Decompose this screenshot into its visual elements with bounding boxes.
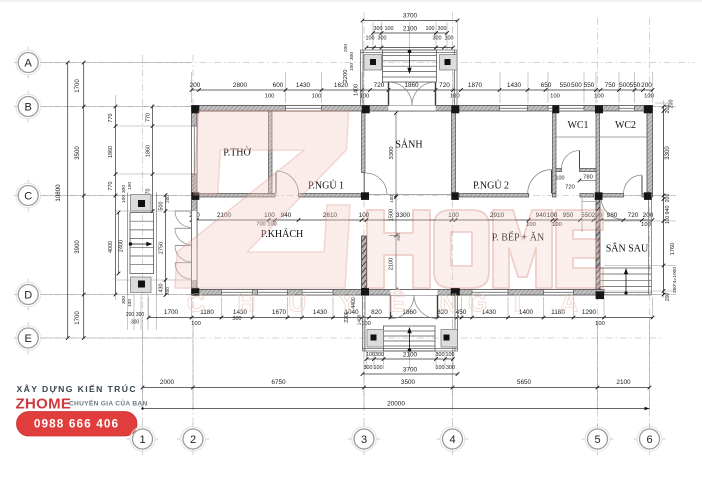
svg-text:3: 3 [361,434,367,446]
svg-text:100: 100 [556,176,565,182]
svg-text:1: 1 [139,434,145,446]
svg-text:100: 100 [127,299,133,307]
svg-text:Ê: Ê [389,288,406,318]
svg-text:720: 720 [565,185,575,191]
svg-text:100: 100 [445,36,454,42]
svg-text:2400: 2400 [119,240,125,252]
svg-text:5: 5 [594,434,600,446]
svg-text:650: 650 [541,82,552,89]
svg-text:3300: 3300 [396,212,411,219]
svg-text:ZHOME: ZHOME [16,396,72,413]
svg-text:940: 940 [665,206,671,215]
svg-text:770: 770 [146,113,152,122]
svg-text:100: 100 [366,352,375,358]
svg-text:100: 100 [595,321,605,327]
svg-text:720: 720 [439,82,450,89]
svg-text:3700: 3700 [403,13,418,20]
svg-text:100: 100 [641,222,651,228]
svg-text:1860: 1860 [404,82,419,89]
svg-text:C: C [24,191,32,203]
svg-text:100: 100 [665,216,671,225]
svg-text:300: 300 [446,365,455,371]
svg-text:1430: 1430 [507,82,522,89]
svg-text:2: 2 [190,434,196,446]
svg-text:E: E [25,333,32,345]
svg-text:200: 200 [165,195,170,203]
svg-text:1430: 1430 [313,309,328,316]
svg-text:100: 100 [644,94,654,100]
svg-text:WC1: WC1 [567,120,588,131]
svg-text:4000: 4000 [108,241,114,253]
svg-text:100: 100 [446,352,455,358]
svg-text:200: 200 [665,105,671,114]
svg-text:100: 100 [360,94,370,100]
svg-text:1290: 1290 [582,309,597,316]
svg-text:750: 750 [605,82,616,89]
svg-text:P.NGỦ 2: P.NGỦ 2 [473,180,509,192]
svg-text:D: D [24,290,32,302]
svg-text:770: 770 [108,182,114,191]
svg-text:2100: 2100 [389,258,395,270]
svg-text:N: N [440,290,458,318]
svg-text:1670: 1670 [272,309,287,316]
svg-text:1700: 1700 [75,311,81,325]
svg-text:300: 300 [374,26,383,32]
svg-text:Y: Y [339,290,356,318]
svg-text:1860: 1860 [146,145,152,157]
svg-text:720: 720 [628,212,639,219]
svg-text:H: H [238,290,256,318]
svg-text:500: 500 [571,82,582,89]
svg-text:100: 100 [127,182,133,190]
svg-text:100: 100 [385,26,394,32]
svg-text:1620: 1620 [334,82,349,89]
svg-text:500: 500 [619,82,630,89]
svg-text:1870: 1870 [468,82,483,89]
svg-text:2750: 2750 [159,242,165,254]
svg-text:SÂN SAU: SÂN SAU [606,243,649,255]
svg-text:I: I [514,290,521,318]
svg-text:300: 300 [436,352,445,358]
svg-text:5650: 5650 [517,379,532,386]
svg-text:U: U [288,290,306,318]
svg-text:A: A [25,58,33,70]
svg-text:2100: 2100 [403,352,418,359]
svg-text:6750: 6750 [271,379,286,386]
svg-text:100: 100 [594,94,604,100]
svg-text:100: 100 [349,63,355,71]
svg-text:500: 500 [159,202,165,211]
svg-text:200: 200 [665,293,671,302]
svg-text:2100: 2100 [616,379,631,386]
svg-text:100: 100 [191,321,201,327]
svg-text:600: 600 [273,82,284,89]
svg-text:100: 100 [426,26,435,32]
svg-text:2000: 2000 [160,379,175,386]
svg-text:100: 100 [312,94,322,100]
svg-text:100: 100 [550,94,560,100]
svg-text:430: 430 [159,284,165,293]
svg-text:300: 300 [364,365,373,371]
svg-text:100: 100 [265,94,275,100]
svg-text:100: 100 [374,365,383,371]
svg-text:6: 6 [646,434,652,446]
svg-text:A: A [560,290,578,318]
svg-text:4: 4 [449,434,455,446]
svg-text:1760: 1760 [670,243,676,255]
svg-text:550: 550 [584,82,595,89]
svg-text:100: 100 [389,195,394,203]
svg-text:300: 300 [131,320,140,326]
svg-text:200: 200 [126,312,135,318]
svg-text:1700: 1700 [75,79,81,93]
svg-text:550: 550 [560,82,571,89]
svg-text:1700: 1700 [164,309,179,316]
svg-text:200: 200 [641,82,652,89]
svg-text:3500: 3500 [75,146,81,160]
svg-text:300: 300 [375,352,384,358]
svg-text:300: 300 [378,36,387,42]
svg-text:300: 300 [121,185,127,193]
svg-text:3700: 3700 [403,367,418,374]
svg-text:300: 300 [438,26,447,32]
svg-text:2800: 2800 [233,82,248,89]
svg-text:720: 720 [374,82,385,89]
svg-text:3300: 3300 [389,147,395,160]
svg-text:100: 100 [121,195,127,203]
svg-text:WC2: WC2 [615,120,636,131]
svg-text:100: 100 [366,36,375,42]
svg-text:300: 300 [136,312,145,318]
svg-text:770: 770 [108,114,114,123]
svg-text:1860: 1860 [108,146,114,158]
svg-text:10800: 10800 [55,184,62,202]
svg-text:1500: 1500 [389,209,395,221]
svg-text:300: 300 [121,296,127,304]
svg-text:200: 200 [190,82,201,89]
svg-text:820: 820 [371,309,382,316]
svg-text:1400: 1400 [357,314,363,325]
svg-text:G: G [468,290,487,318]
svg-text:SẢNH: SẢNH [395,139,422,151]
svg-text:200: 200 [665,194,671,203]
svg-text:1430: 1430 [296,82,311,89]
svg-text:XÂY DỰNG KIẾN TRÚC: XÂY DỰNG KIẾN TRÚC [17,383,138,394]
svg-text:B: B [25,102,32,114]
svg-text:20000: 20000 [387,401,405,408]
svg-text:300: 300 [349,52,355,60]
svg-text:3300: 3300 [665,146,671,160]
svg-text:3900: 3900 [75,240,81,254]
svg-text:CHUYÊN GIA CỦA BẠN: CHUYÊN GIA CỦA BẠN [69,399,148,408]
svg-text:300: 300 [433,36,442,42]
svg-text:2200: 2200 [343,70,349,83]
svg-text:100: 100 [436,365,445,371]
svg-text:1400: 1400 [519,309,534,316]
svg-text:2100: 2100 [403,26,418,33]
svg-text:200: 200 [343,44,349,52]
svg-text:0988 666 406: 0988 666 406 [34,417,119,431]
svg-text:200: 200 [165,287,170,295]
svg-text:250*4=1000: 250*4=1000 [672,267,678,293]
svg-text:550: 550 [630,82,641,89]
svg-text:C: C [187,290,205,318]
svg-text:780: 780 [583,175,593,181]
svg-text:3500: 3500 [401,379,416,386]
